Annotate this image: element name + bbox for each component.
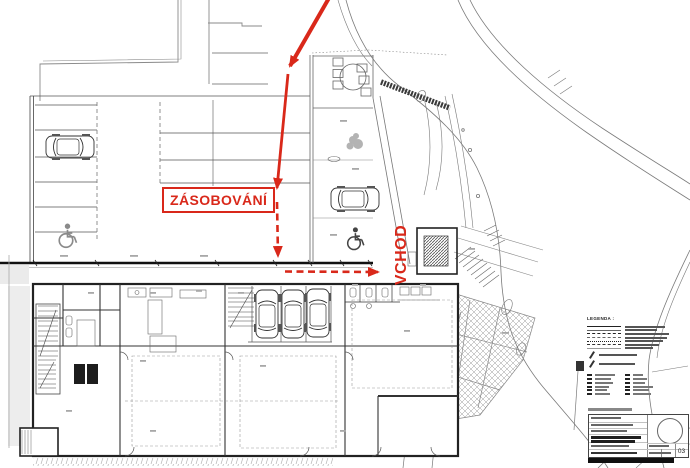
entrance-pavilion [408,228,457,274]
legend-abbreviations [587,374,677,395]
courtyard-strip [310,50,448,266]
retaining-wall-hatch [381,82,450,108]
shrub-icon [347,133,364,150]
title-block: 03 [588,406,689,464]
site-plan-linework [0,0,690,468]
route-arrow-dashed-right [285,272,378,273]
wheelchair-icon [348,227,364,249]
title-block-header-text [588,408,632,411]
entrance-label: VCHOD [393,220,411,290]
section-marker [576,361,584,371]
turning-circle [340,64,366,90]
wheelchair-icon [59,224,76,248]
legend: LEGENDA : [587,316,677,395]
title-block-table: 03 [588,414,689,458]
building-plan [8,120,509,466]
legend-entry [587,360,677,368]
sheet-number: 03 [676,448,687,455]
stamp-circle [657,418,683,444]
route-arrow-dashed-down [277,202,278,256]
legend-entry [587,351,677,359]
car-icon [46,134,94,160]
route-arrow-mid [277,74,288,188]
supply-route-label: ZÁSOBOVÁNÍ [162,187,275,213]
title-block-footer-bar [588,458,674,463]
legend-entry [587,347,677,351]
supply-route-arrows [277,0,378,272]
vestibule [20,428,58,456]
adjacent-building-outline [40,0,268,101]
car-icon [331,186,379,212]
legend-title: LEGENDA : [587,316,677,321]
floor-plan-drawing: ZÁSOBOVÁNÍ VCHOD LEGENDA : [0,0,690,468]
